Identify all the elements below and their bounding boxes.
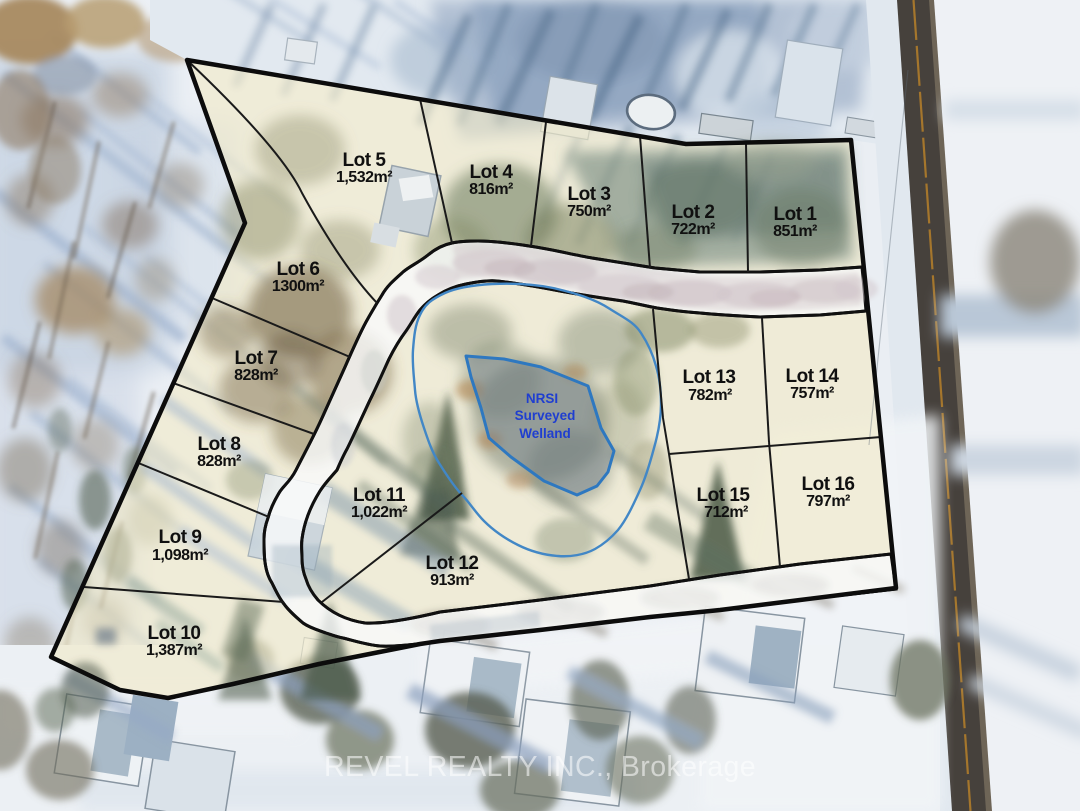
svg-text:757m²: 757m²	[790, 385, 834, 402]
svg-text:Lot 14: Lot 14	[786, 366, 840, 387]
svg-text:722m²: 722m²	[671, 221, 715, 238]
svg-text:Surveyed: Surveyed	[515, 408, 576, 423]
svg-text:Lot 11: Lot 11	[353, 485, 406, 506]
svg-text:1,387m²: 1,387m²	[146, 642, 202, 659]
svg-text:750m²: 750m²	[567, 203, 611, 220]
svg-text:Lot 9: Lot 9	[159, 527, 202, 548]
svg-text:Lot 12: Lot 12	[426, 553, 479, 574]
svg-text:828m²: 828m²	[197, 453, 241, 470]
svg-text:Lot 2: Lot 2	[672, 202, 715, 223]
svg-text:782m²: 782m²	[688, 387, 732, 404]
svg-text:828m²: 828m²	[234, 367, 278, 384]
svg-text:712m²: 712m²	[704, 504, 748, 521]
svg-text:816m²: 816m²	[469, 181, 513, 198]
svg-text:851m²: 851m²	[773, 223, 817, 240]
svg-text:Lot 7: Lot 7	[235, 348, 278, 369]
svg-text:Lot 4: Lot 4	[470, 162, 514, 183]
svg-text:1,098m²: 1,098m²	[152, 547, 208, 564]
svg-text:Lot 5: Lot 5	[343, 150, 387, 171]
svg-text:Lot 10: Lot 10	[148, 623, 201, 644]
svg-text:797m²: 797m²	[806, 493, 850, 510]
svg-text:Lot 1: Lot 1	[774, 204, 818, 225]
svg-text:Welland: Welland	[519, 426, 571, 441]
svg-text:REVEL REALTY INC., Brokerage: REVEL REALTY INC., Brokerage	[324, 751, 756, 783]
svg-text:1,532m²: 1,532m²	[336, 169, 392, 186]
svg-text:NRSI: NRSI	[526, 391, 558, 406]
svg-text:Lot 6: Lot 6	[277, 259, 320, 280]
svg-text:Lot 13: Lot 13	[683, 367, 736, 388]
svg-text:Lot 3: Lot 3	[568, 184, 611, 205]
svg-text:913m²: 913m²	[430, 572, 474, 589]
svg-text:Lot 16: Lot 16	[802, 474, 855, 495]
svg-text:1,022m²: 1,022m²	[351, 504, 407, 521]
svg-text:Lot 8: Lot 8	[198, 434, 241, 455]
svg-text:1300m²: 1300m²	[272, 278, 324, 295]
svg-text:Lot 15: Lot 15	[697, 485, 751, 506]
